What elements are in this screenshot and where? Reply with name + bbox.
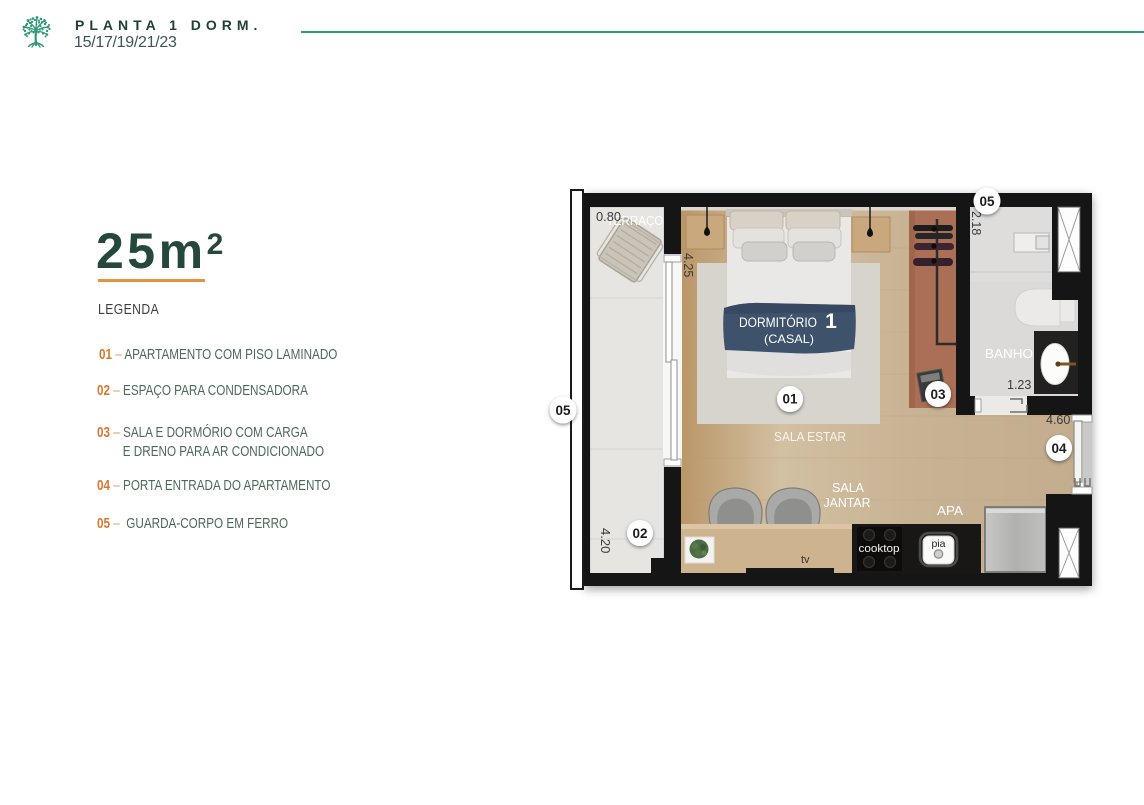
svg-text:APA: APA [937,503,963,518]
svg-text:cooktop: cooktop [859,543,900,555]
svg-text:4.20: 4.20 [598,528,613,553]
svg-text:1.23: 1.23 [1007,378,1031,392]
svg-text:1: 1 [825,310,837,333]
svg-text:2.18: 2.18 [969,211,983,235]
svg-text:0.80: 0.80 [596,210,621,224]
svg-text:05: 05 [979,194,995,209]
svg-text:4.25: 4.25 [681,253,695,277]
svg-text:DORMITÓRIO: DORMITÓRIO [739,315,817,330]
svg-text:04: 04 [1051,441,1067,456]
svg-text:(CASAL): (CASAL) [764,332,814,346]
svg-text:05: 05 [555,403,571,418]
svg-text:01: 01 [782,392,798,407]
svg-text:BANHO: BANHO [985,346,1033,361]
svg-text:03: 03 [930,387,946,402]
svg-text:4.60: 4.60 [1046,413,1070,427]
svg-text:tv: tv [801,554,810,566]
svg-text:02: 02 [632,526,647,541]
svg-text:SALA: SALA [832,480,864,495]
svg-text:pia: pia [931,538,945,550]
svg-text:SALA ESTAR: SALA ESTAR [774,429,846,444]
svg-text:JANTAR: JANTAR [824,495,871,510]
